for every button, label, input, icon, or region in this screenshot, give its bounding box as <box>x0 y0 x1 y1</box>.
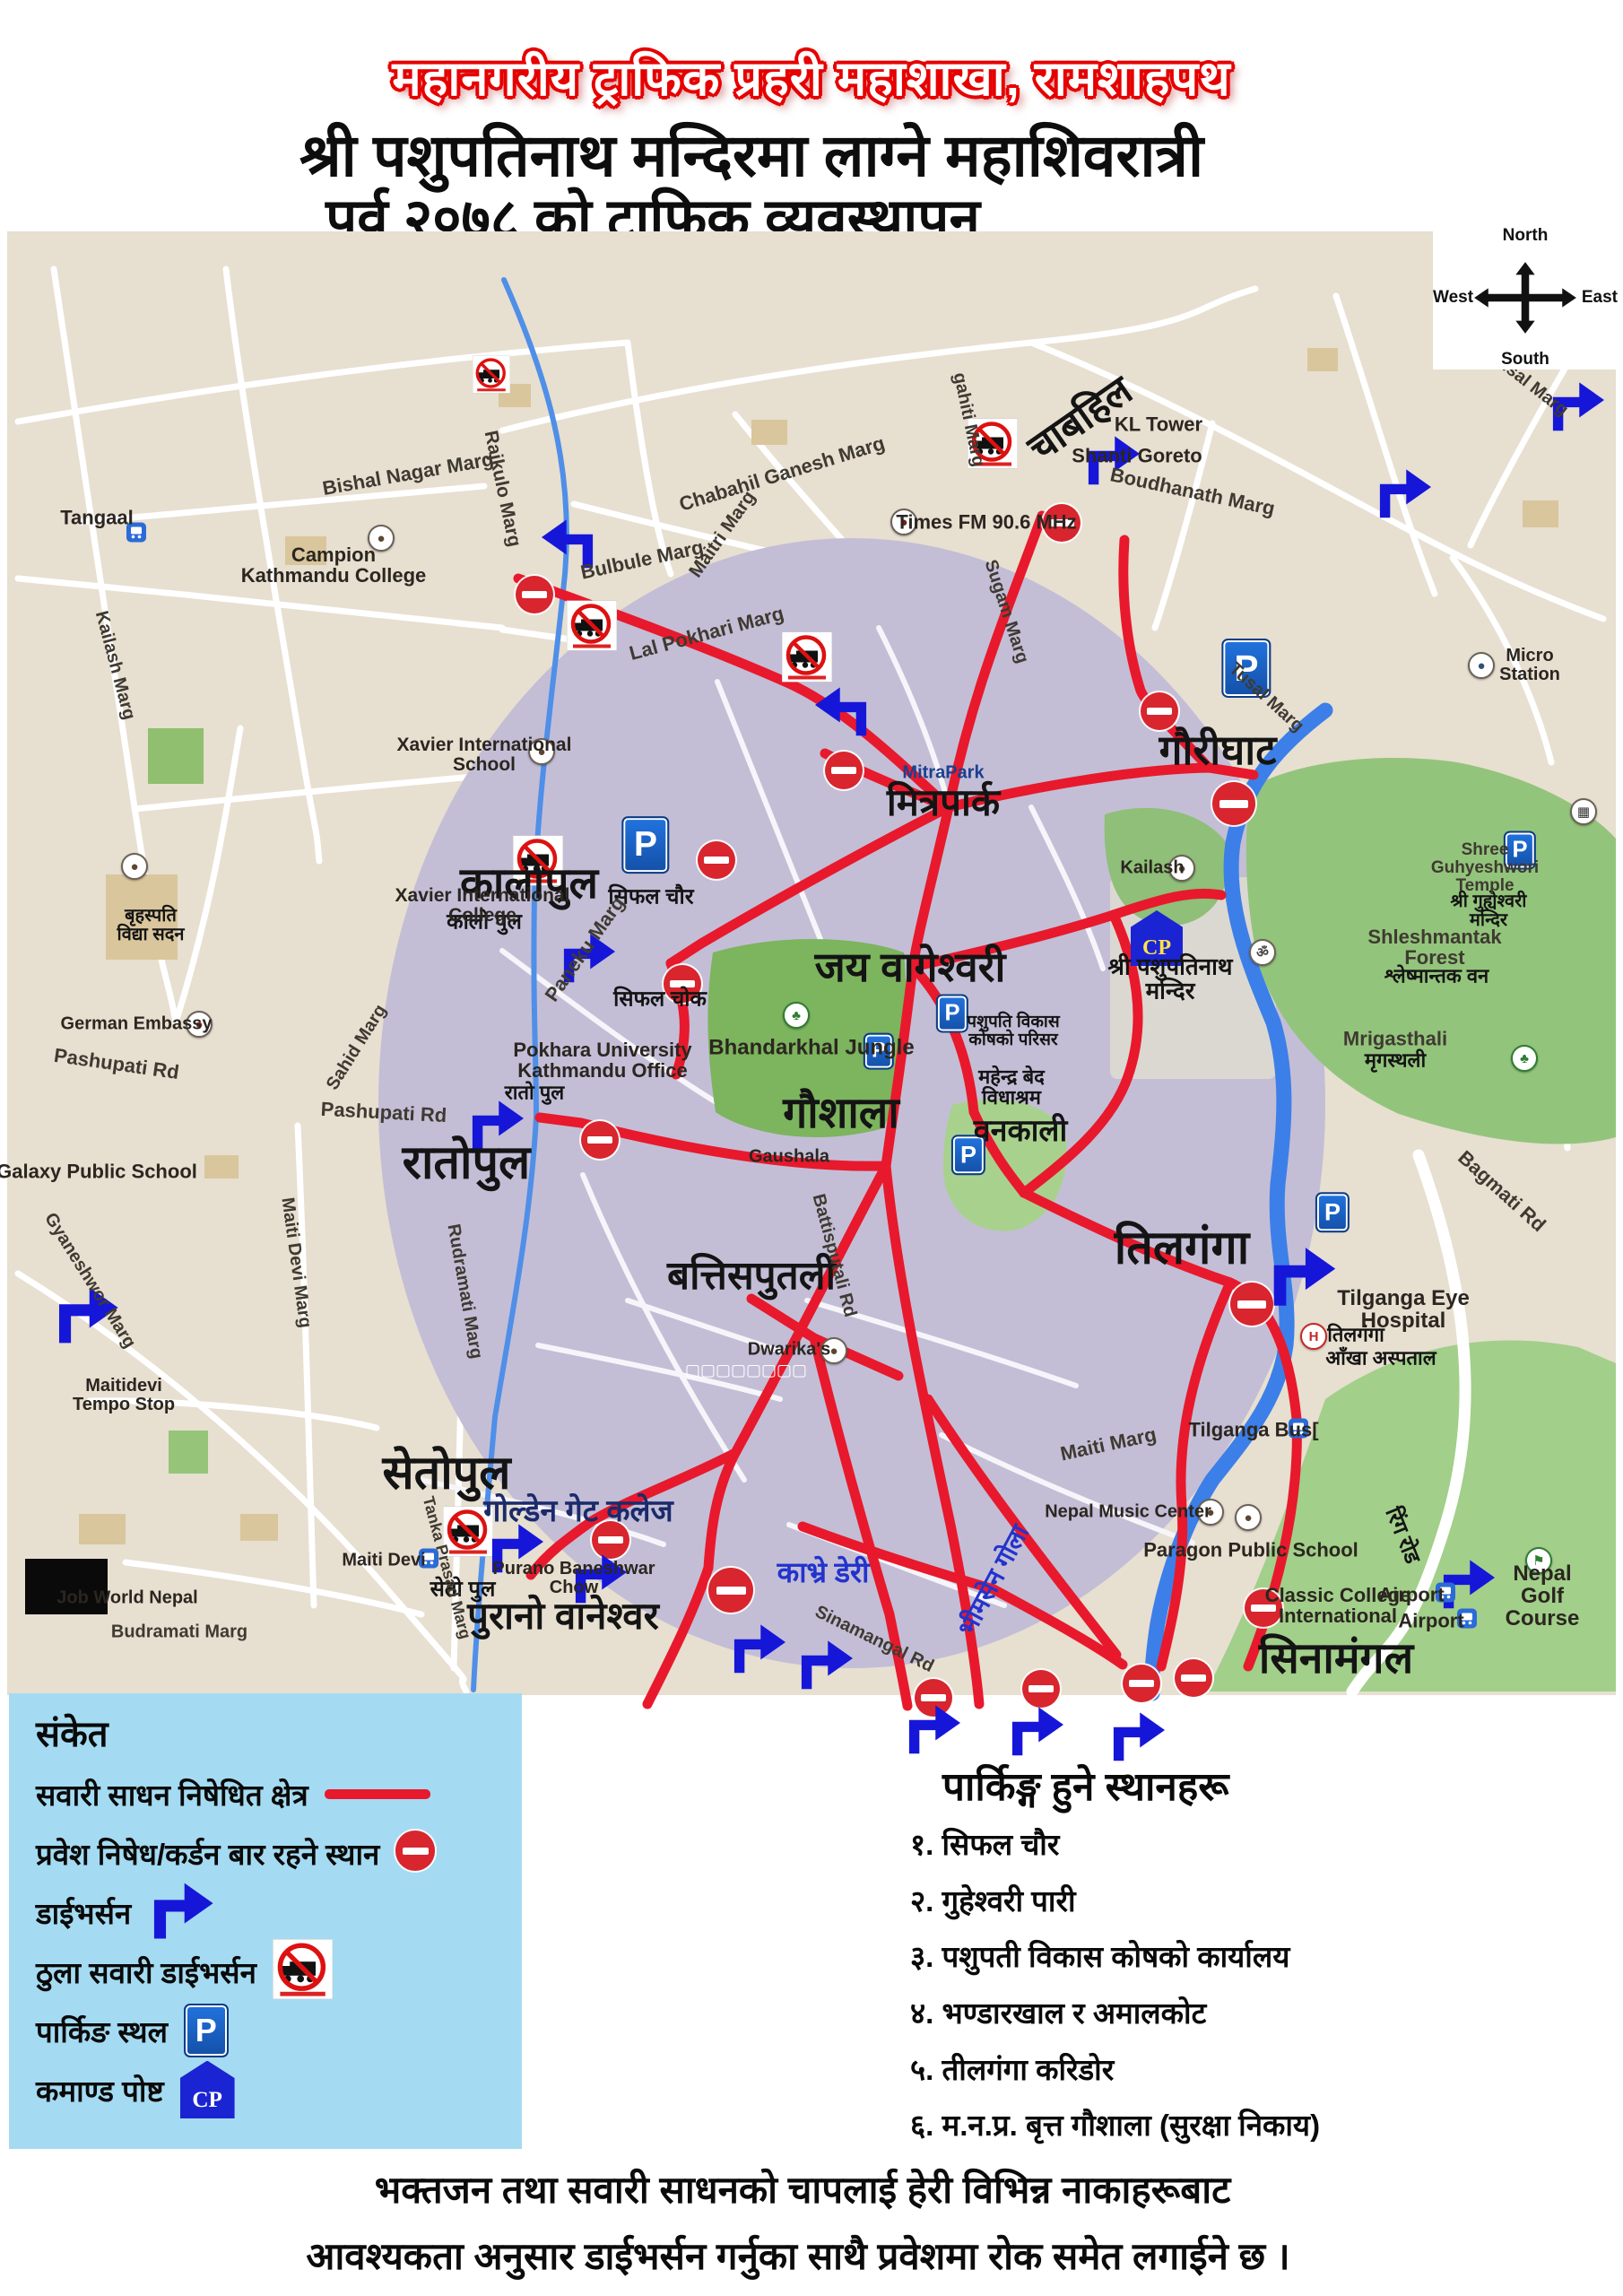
map-icon-slot: ● <box>820 1337 847 1364</box>
no-entry-icon <box>825 752 863 789</box>
parking-icon: P <box>1221 639 1271 698</box>
map-icon-slot <box>1006 1703 1065 1763</box>
map-icon-slot <box>567 601 617 656</box>
no-heavy-vehicle-icon <box>273 1939 333 1999</box>
no-entry-icon <box>395 1831 435 1870</box>
poi-icon: ♣ <box>783 1002 810 1029</box>
poi-icon: ● <box>890 509 917 535</box>
legend-item-icon <box>395 1831 435 1874</box>
diversion-arrow-icon <box>1547 378 1606 434</box>
no-entry-icon <box>1123 1665 1160 1702</box>
map-icon-slot: ♣ <box>1511 1045 1538 1072</box>
no-heavy-vehicle-icon <box>567 601 617 651</box>
parking-location-item: ३. पशुपती विकास कोषको कार्यालय <box>910 1942 1623 1973</box>
map-icon-slot: ● <box>186 1011 213 1038</box>
parking-icon: P <box>1504 831 1536 869</box>
legend-item-icon <box>147 1878 215 1946</box>
diversion-arrow-icon <box>1006 1703 1065 1759</box>
parking-location-item: ५. तीलगंगा करिडोर <box>910 2055 1623 2086</box>
diversion-arrow-icon <box>1374 465 1433 521</box>
diversion-arrow-icon <box>540 516 599 571</box>
map-icon-slot: ⚑ <box>1525 1547 1552 1574</box>
map-icon-slot: ♣ <box>783 1002 810 1029</box>
bus-stop-icon <box>126 523 146 543</box>
map-icon-slot <box>1436 1583 1455 1607</box>
map-icon-slot: P <box>936 994 968 1032</box>
poi-icon: ● <box>820 1337 847 1364</box>
map-icon-slot: CP <box>1131 910 1183 966</box>
legend-item: कमाण्ड पोष्टCP <box>36 2060 522 2119</box>
diversion-arrow-icon <box>1107 1709 1167 1764</box>
map-icon-slot <box>419 1549 438 1573</box>
map-icon-slot <box>466 1097 525 1157</box>
no-entry-icon <box>516 576 553 613</box>
parking-locations: पार्किङ्ग हुने स्थानहरू १. सिफल चौर२. गु… <box>910 1758 1623 2167</box>
legend-item-icon <box>325 1789 430 1799</box>
map-icon-slot: ● <box>1235 1504 1262 1531</box>
no-entry-icon <box>1245 1589 1282 1627</box>
map-icon-slot: P <box>951 1135 985 1175</box>
command-post-letters: CP <box>192 2088 222 2118</box>
parking-location-item: १. सिफल चौर <box>910 1830 1623 1861</box>
diversion-arrow-icon <box>558 930 617 986</box>
map-icon-slot: ● <box>121 853 148 880</box>
legend-item: प्रवेश निषेध/कर्डन बार रहने स्थान <box>36 1823 522 1883</box>
traffic-poster: महानगरीय ट्राफिक प्रहरी महाशाखा, रामशाहप… <box>0 0 1623 2296</box>
map-icon-slot: ● <box>368 525 395 552</box>
bus-stop-icon <box>419 1549 438 1569</box>
parking-location-item: २. गुहेश्वरी पारी <box>910 1886 1623 1918</box>
diversion-arrow-icon <box>795 1637 855 1692</box>
map-icon-slot <box>1457 1609 1477 1633</box>
map-icon-slot <box>1289 1419 1308 1443</box>
restricted-road-line-icon <box>325 1789 430 1799</box>
bus-stop-icon <box>1436 1583 1455 1603</box>
no-entry-icon <box>1043 504 1081 542</box>
map-icon-slot <box>1266 1242 1337 1313</box>
parking-letter: P <box>872 1039 886 1064</box>
parking-letter: P <box>960 1141 976 1169</box>
diversion-arrow-icon <box>52 1283 120 1346</box>
map-icon-slot <box>540 516 599 576</box>
legend-item-icon <box>273 1939 333 2004</box>
poi-icon: ● <box>368 525 395 552</box>
map-icon-slot: H <box>1300 1323 1327 1350</box>
map-icon-slot: ● <box>528 738 555 765</box>
parking-location-item: ४. भण्डारखाल र अमालकोट <box>910 1998 1623 2030</box>
map-icon-slot <box>1547 378 1606 439</box>
parking-icon: P <box>184 2004 229 2057</box>
no-entry-icon <box>1175 1659 1212 1697</box>
poi-icon: ● <box>1235 1504 1262 1531</box>
parking-icon: P <box>1315 1192 1350 1232</box>
poi-icon: ● <box>121 853 148 880</box>
no-entry-icon <box>1141 692 1178 730</box>
command-post-icon: CP <box>1131 910 1183 966</box>
map-icon-slot: P <box>864 1033 894 1070</box>
legend-box: संकेत सवारी साधन निषेधित क्षेत्रप्रवेश न… <box>9 1693 522 2149</box>
park-square <box>169 1431 208 1474</box>
park-square <box>148 728 204 784</box>
poi-icon: ● <box>1468 652 1495 679</box>
poi-icon: ● <box>186 1011 213 1038</box>
map-icon-slot <box>126 523 146 547</box>
map-icon-slot <box>968 419 1018 474</box>
no-entry-icon <box>698 841 735 879</box>
map-icon-slot <box>1374 465 1433 526</box>
parking-locations-title: पार्किङ्ग हुने स्थानहरू <box>942 1758 1623 1812</box>
parking-icon: P <box>951 1135 985 1175</box>
compass-rose: North South West East <box>1433 226 1618 370</box>
no-heavy-vehicle-icon <box>782 632 832 683</box>
poi-icon: ● <box>528 738 555 765</box>
parking-letter: P <box>1234 648 1258 690</box>
map-icon-slot: ● <box>1468 652 1495 679</box>
parking-icon: P <box>864 1033 894 1070</box>
poi-icon: ⚑ <box>1525 1547 1552 1574</box>
diversion-arrow-icon <box>1266 1242 1337 1309</box>
map-icon-slot: P <box>1221 639 1271 698</box>
diversion-arrow-icon <box>466 1097 525 1152</box>
diversion-arrow-icon <box>569 1551 629 1606</box>
map-icon-slot <box>813 683 872 744</box>
no-entry-icon <box>664 965 701 1003</box>
legend-item-label: ठुला सवारी डाईभर्सन <box>36 1952 256 1992</box>
diversion-arrow-icon <box>486 1520 545 1576</box>
map-icon-slot: ॐ <box>1249 939 1276 966</box>
parking-letter: P <box>195 2012 217 2049</box>
map-icon-slot: ● <box>1168 855 1195 882</box>
map-icon-slot <box>1082 432 1141 492</box>
no-entry-icon <box>581 1121 619 1159</box>
compass-east-label: East <box>1582 288 1618 308</box>
footer-line1: भक्तजन तथा सवारी साधनको चापलाई हेरी विभि… <box>375 2163 1231 2214</box>
legend-item-icon: P <box>184 2004 229 2057</box>
compass-north-label: North <box>1503 226 1549 246</box>
map-icon-slot <box>728 1621 787 1681</box>
map-icon-slot: P <box>1315 1192 1350 1232</box>
poi-icon: ♣ <box>1511 1045 1538 1072</box>
map-icon-slot: ● <box>890 509 917 535</box>
map-icon-slot <box>903 1701 962 1761</box>
parking-letter: P <box>944 1001 959 1027</box>
footer-line2: आवश्यकता अनुसार डाईभर्सन गर्नुका साथै प्… <box>306 2230 1289 2281</box>
legend-item: ठुला सवारी डाईभर्सन <box>36 1942 522 2001</box>
bus-stop-icon <box>1289 1419 1308 1439</box>
diversion-arrow-icon <box>813 683 872 739</box>
diversion-arrow-icon <box>903 1701 962 1757</box>
map-icon-slot <box>569 1551 629 1611</box>
map-icon-slot <box>558 930 617 990</box>
legend-item: सवारी साधन निषेधित क्षेत्र <box>36 1764 522 1823</box>
map-icon-slot <box>486 1520 545 1580</box>
command-post-letters: CP <box>1142 936 1171 966</box>
parking-letter: P <box>634 825 657 865</box>
no-heavy-vehicle-icon <box>968 419 1018 469</box>
map-icon-slot <box>782 632 832 687</box>
compass-south-label: South <box>1501 350 1549 370</box>
dark-block <box>25 1559 108 1614</box>
legend-heading: संकेत <box>36 1708 522 1757</box>
legend-item-label: सवारी साधन निषेधित क्षेत्र <box>36 1774 308 1814</box>
command-post-icon: CP <box>180 2061 235 2119</box>
legend-item-label: कमाण्ड पोष्ट <box>36 2070 164 2110</box>
map-icon-slot <box>473 356 510 398</box>
map-icon-slot: ▦ <box>1570 798 1597 825</box>
legend-item: डाईभर्सन <box>36 1883 522 1942</box>
map-icon-slot <box>52 1283 120 1351</box>
no-heavy-vehicle-icon <box>513 836 563 886</box>
poi-icon: ● <box>1197 1499 1224 1526</box>
diversion-arrow-icon <box>1082 432 1141 488</box>
compass-cross-icon <box>1468 251 1583 344</box>
parking-location-item: ६. म.न.प्र. बृत्त गौशाला (सुरक्षा निकाय) <box>910 2110 1623 2142</box>
legend-item-label: पार्किङ स्थल <box>36 2011 168 2051</box>
parking-letter: P <box>1512 838 1527 864</box>
legend-item: पार्किङ स्थलP <box>36 2001 522 2060</box>
parking-icon: P <box>621 816 669 874</box>
legend-item-icon: CP <box>180 2061 235 2119</box>
poi-icon: ▦ <box>1570 798 1597 825</box>
poi-icon: ● <box>1168 855 1195 882</box>
diversion-arrow-icon <box>147 1878 215 1942</box>
legend-item-label: डाईभर्सन <box>36 1892 131 1933</box>
map-icon-slot: P <box>621 816 669 874</box>
poi-icon: H <box>1300 1323 1327 1350</box>
parking-letter: P <box>1324 1198 1341 1226</box>
map-icon-slot <box>513 836 563 891</box>
map-icon-slot: ● <box>1197 1499 1224 1526</box>
poi-icon: ॐ <box>1249 939 1276 966</box>
parking-icon: P <box>936 994 968 1032</box>
no-heavy-vehicle-icon <box>473 356 510 394</box>
diversion-arrow-icon <box>728 1621 787 1676</box>
map-icon-slot <box>795 1637 855 1697</box>
map-icon-slot: P <box>1504 831 1536 869</box>
legend-item-label: प्रवेश निषेध/कर्डन बार रहने स्थान <box>36 1833 379 1874</box>
bus-stop-icon <box>1457 1609 1477 1629</box>
